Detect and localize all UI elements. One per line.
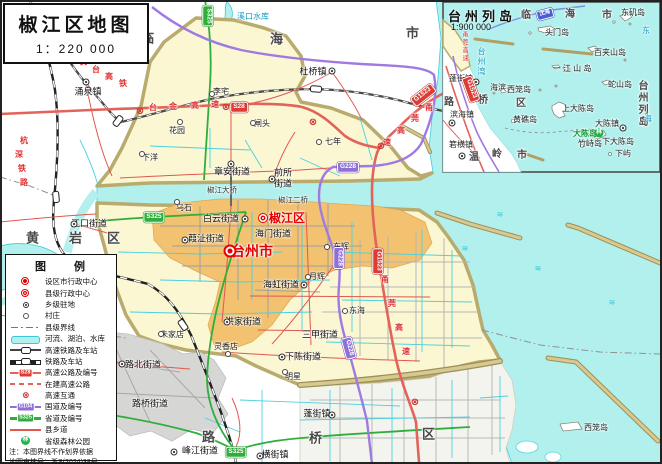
label-hengjie-town: 横街镇: [261, 451, 288, 460]
legend-item-label: 在建高速公路: [45, 379, 90, 390]
legend-note: 注：本图界线不作划界依据: [9, 449, 113, 458]
map-label: 闸头: [254, 120, 270, 128]
map-label: 乌石: [176, 204, 192, 212]
legend-badge: S28: [18, 368, 33, 377]
map-label: ≋: [535, 265, 542, 273]
map-label: 蛇山岛: [608, 81, 632, 89]
map-label: 台: [149, 104, 157, 112]
map-symbol: [224, 319, 231, 326]
map-label: 甬: [381, 276, 389, 284]
interchange-symbol: ⊗: [411, 398, 419, 408]
map-label: 西笼岛: [507, 86, 531, 94]
map-symbol: [449, 120, 456, 127]
map-title: 椒江区地图: [18, 10, 133, 37]
badge-s325: S325: [203, 5, 214, 26]
label-xiachen-subdistrict: 下陈街道: [285, 353, 321, 362]
map-label: 温: [469, 153, 479, 163]
legend-item-river: 河流、湖泊、水库: [9, 333, 113, 344]
legend-item-hsr: 高速铁路及车站: [9, 344, 113, 355]
map-symbol: [342, 308, 348, 314]
map-label: 高: [191, 102, 199, 110]
legend-item-expwy: S28高速公路及编号: [9, 367, 113, 378]
map-label: 滨海镇: [450, 111, 474, 119]
interchange-symbol: ⊗: [222, 103, 230, 113]
legend-item-forest: 省级森林公园: [9, 435, 113, 446]
legend-item-label: 高速互通: [45, 390, 75, 401]
rail-station-symbol: [310, 85, 322, 93]
region-luqiao-char: 桥: [309, 432, 323, 445]
map-label: 铁: [18, 165, 26, 173]
label-qiansuo-subdistrict: 前所: [274, 169, 292, 178]
map-symbol: [174, 199, 180, 205]
badge-s325: S325: [225, 447, 246, 458]
legend-item-town: 乡级驻地: [9, 299, 113, 310]
map-symbol: [171, 449, 178, 456]
legend-item-county: 县级行政中心: [9, 287, 113, 298]
map-label: 甬莞高速: [461, 31, 467, 63]
legend-item-label: 县级界线: [45, 322, 75, 333]
region-linhai-char: 市: [406, 27, 420, 40]
map-label: 上大陈岛: [562, 105, 594, 113]
label-haihong-subdistrict: 海虹街道: [263, 281, 299, 290]
map-label: 高: [395, 324, 403, 332]
map-symbol: [329, 68, 336, 75]
village-legend-icon: [9, 310, 42, 321]
rail-station-symbol: [52, 191, 60, 204]
map-label: 百夹山岛: [594, 49, 626, 57]
map-label: 铁: [119, 80, 127, 88]
map-symbol: [257, 453, 264, 460]
map-label: 速: [402, 348, 410, 356]
map-symbol: [250, 120, 256, 126]
label-taizhou-city: 台州市: [231, 244, 273, 258]
legend-item-provincial: S325省道及编号: [9, 413, 113, 424]
map-label: 甬: [425, 104, 433, 112]
map-label: 高: [397, 127, 405, 135]
map-label: 灵香店: [214, 343, 238, 351]
legend-item-label: 村庄: [45, 310, 60, 321]
legend-item-label: 省道及编号: [45, 413, 83, 424]
map-symbol: [209, 91, 215, 97]
map-symbol: [305, 274, 311, 280]
hsr-legend-icon: [9, 345, 42, 356]
expwy-legend-icon: S28: [9, 367, 42, 378]
map-symbol: [324, 244, 330, 250]
map-label: 杭: [20, 137, 28, 145]
label-duqiao-town: 杜桥镇: [299, 68, 326, 77]
legend-box: 图 例 设区市行政中心县级行政中心乡级驻地村庄县级界线河流、湖泊、水库高速铁路及…: [5, 254, 117, 461]
map-symbol: [119, 361, 126, 368]
label-sanjia-subdistrict: 三甲街道: [302, 331, 338, 340]
map-label: 深: [15, 151, 23, 159]
map-label: 街道: [274, 180, 292, 189]
legend-item-boundary: 县级界线: [9, 322, 113, 333]
countyroad-legend-icon: [9, 424, 42, 435]
map-symbol: [459, 153, 466, 160]
map-symbol: [301, 282, 308, 289]
label-yongquan-town: 涌泉镇: [74, 88, 101, 97]
map-label: 路: [444, 98, 454, 108]
county-legend-icon: [9, 288, 42, 299]
badge-s325: S325: [143, 212, 164, 223]
town-legend-icon: [9, 299, 42, 310]
region-huangyan-char: 黄: [26, 232, 40, 245]
interchange-symbol: ⊗: [309, 118, 317, 128]
interchange-symbol: ⊗: [377, 142, 385, 152]
map-label: 海: [565, 10, 575, 20]
interchange-symbol: ⊗: [136, 107, 144, 117]
label-baiyun-subdistrict: 白云街道: [203, 215, 239, 224]
region-luqiao-char: 区: [422, 428, 436, 441]
map-label: 一 江 山 岛: [553, 65, 592, 73]
map-label: 莞: [388, 300, 396, 308]
map-symbol: [316, 139, 322, 145]
legend-item-constr: 在建高速公路: [9, 379, 113, 390]
legend-badge: G104: [16, 402, 34, 411]
map-symbol: [269, 176, 276, 183]
map-label: 七年: [325, 138, 341, 146]
legend-item-label: 高速铁路及车站: [45, 345, 98, 356]
label-dachen-town: 大陈镇: [595, 120, 619, 128]
legend-title: 图 例: [9, 258, 113, 274]
map-label: 市: [517, 151, 527, 161]
legend-item-city: 设区市行政中心: [9, 276, 113, 287]
rail-legend-icon: [9, 356, 42, 367]
label-xilong-island: 西笼岛: [584, 424, 608, 432]
badge-g1523: G1523: [373, 248, 384, 274]
map-label: 下大陈岛: [602, 138, 634, 146]
badge-g228: G228: [334, 247, 345, 269]
national-legend-icon: G104: [9, 401, 42, 412]
legend-item-national: G104国道及编号: [9, 401, 113, 412]
map-label: 月辉: [309, 273, 325, 281]
badge-s28: S28: [230, 102, 248, 113]
constr-legend-icon: [9, 379, 42, 390]
map-title-box: 椒江区地图 1：220 000: [3, 3, 149, 64]
region-luqiao-char: 路: [202, 431, 216, 444]
map-label: 速: [211, 101, 219, 109]
legend-item-label: 县乡道: [45, 424, 68, 435]
legend-item-label: 乡级驻地: [45, 299, 75, 310]
legend-items: 设区市行政中心县级行政中心乡级驻地村庄县级界线河流、湖泊、水库高速铁路及车站铁路…: [9, 276, 113, 447]
map-scale: 1：220 000: [36, 40, 116, 57]
map-label: 明星: [285, 373, 301, 381]
map-symbol: [279, 354, 286, 361]
region-linhai-char: 海: [270, 33, 284, 46]
map-label: 市: [602, 11, 612, 21]
map-label: 黄礁岛: [513, 116, 537, 124]
legend-item-label: 省级森林公园: [45, 436, 90, 447]
map-symbol: [139, 151, 145, 157]
label-haimen-subdistrict: 海门街道: [255, 230, 291, 239]
county-admin-symbol: [258, 213, 268, 223]
interchange-legend-icon: [9, 390, 42, 401]
label-zhangan-subdistrict: 章安街道: [214, 168, 250, 177]
badge-g228: G228: [337, 162, 359, 173]
legend-review-number: 地图审核号：浙S(2024)38号: [9, 459, 113, 464]
map-label: 台州湾: [477, 47, 485, 77]
legend-item-label: 河流、湖泊、水库: [45, 333, 105, 344]
boundary-legend-icon: [9, 322, 42, 333]
map-symbol: [329, 412, 336, 419]
legend-item-label: 铁路及车站: [45, 356, 83, 367]
provincial-legend-icon: S325: [9, 413, 42, 424]
map-label: 临: [521, 11, 531, 21]
map-symbol: [228, 161, 235, 168]
map-symbol: [182, 237, 189, 244]
map-label: 东: [642, 27, 650, 35]
map-label: 李宅: [213, 88, 229, 96]
map-label: ≋: [609, 299, 616, 307]
map-label: 下屿: [615, 150, 631, 158]
map-label: 竹峙岛: [578, 140, 602, 148]
city-admin-symbol: [224, 245, 237, 258]
map-symbol: [83, 79, 90, 86]
label-fengjiang-subdistrict: 峰江街道: [182, 447, 218, 456]
label-jiaojiang-bridge: 椒江大桥: [207, 186, 237, 194]
map-label: 头门岛: [545, 29, 569, 37]
legend-item-label: 国道及编号: [45, 401, 83, 412]
legend-item-countyroad: 县乡道: [9, 424, 113, 435]
legend-item-label: 县级行政中心: [45, 288, 90, 299]
map-symbol: [620, 125, 627, 132]
label-jiazhi-subdistrict: 葭沚街道: [188, 235, 224, 244]
map-label: 岭: [492, 150, 502, 160]
map-label: 箬横镇: [449, 141, 473, 149]
label-xikou-reservoir: 溪口水库: [237, 13, 269, 21]
map-label: 莞: [411, 115, 419, 123]
region-huangyan-char: 岩: [69, 232, 83, 245]
legend-item-interchange: 高速互通: [9, 390, 113, 401]
label-dachen-island: 大陈岛: [573, 130, 597, 138]
map-label: 东海: [349, 307, 365, 315]
legend-item-village: 村庄: [9, 310, 113, 321]
map-label: 海滨: [490, 84, 506, 92]
map-label: ≋: [462, 245, 469, 253]
map-symbol: [225, 351, 231, 357]
river-legend-icon: [9, 333, 42, 344]
region-huangyan-char: 区: [107, 232, 121, 245]
map-label: 花园: [169, 127, 185, 135]
inset-scale: 1:900 000: [451, 22, 491, 32]
map-label: ≋: [497, 211, 504, 219]
legend-item-label: 高速公路及编号: [45, 367, 98, 378]
map-symbol: [242, 216, 249, 223]
map-label: 海: [644, 115, 652, 123]
legend-item-rail: 铁路及车站: [9, 356, 113, 367]
label-jiaojiang-district: 椒江区: [269, 212, 305, 224]
map-canvas: 椒江区地图 1：220 000 台州列岛 1:900 000 图 例 设区市行政…: [0, 0, 662, 464]
map-label: 台: [92, 66, 100, 74]
map-symbol: [282, 369, 288, 375]
legend-item-label: 设区市行政中心: [45, 276, 98, 287]
legend-badge: S325: [17, 414, 35, 423]
label-luqiao-subdistrict: 路桥街道: [132, 400, 168, 409]
map-label: 金: [169, 103, 177, 111]
forest-legend-icon: [9, 436, 42, 447]
map-label: 区: [516, 99, 526, 109]
map-label: 东矶岛: [621, 9, 645, 17]
map-symbol: [158, 331, 164, 337]
city-legend-icon: [9, 276, 42, 287]
map-symbol: [177, 119, 183, 125]
map-symbol: [71, 221, 78, 228]
label-pengjie-town: 蓬街镇: [303, 410, 330, 419]
map-label: 路: [20, 179, 28, 187]
map-label: 高: [105, 73, 113, 81]
label-lubei-subdistrict: 路北街道: [125, 361, 161, 370]
label-jiaojiang-second-bridge: 椒江二桥: [278, 196, 308, 204]
